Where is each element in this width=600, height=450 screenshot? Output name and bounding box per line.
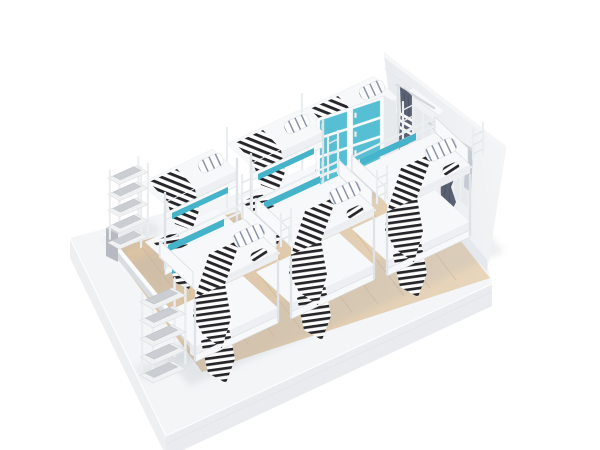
screenshot-root [0, 0, 600, 450]
dorm-room-render [0, 0, 600, 450]
